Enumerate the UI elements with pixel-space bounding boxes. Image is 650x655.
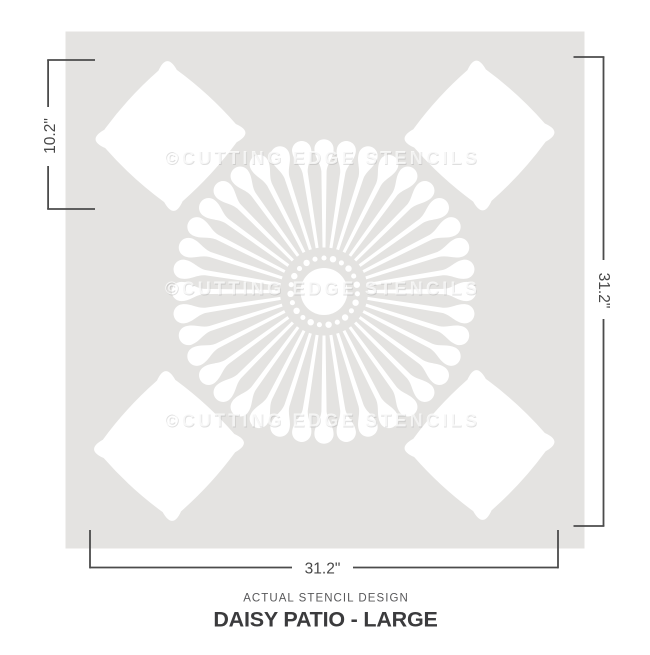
svg-text:DAISY PATIO - LARGE: DAISY PATIO - LARGE [213,608,437,632]
svg-text:©CUTTING EDGE STENCILS: ©CUTTING EDGE STENCILS [165,411,480,431]
svg-text:ACTUAL STENCIL DESIGN: ACTUAL STENCIL DESIGN [243,593,409,605]
svg-text:31.2": 31.2" [305,561,341,578]
svg-text:31.2": 31.2" [595,273,612,309]
svg-text:©CUTTING EDGE STENCILS: ©CUTTING EDGE STENCILS [165,278,480,298]
svg-text:©CUTTING EDGE STENCILS: ©CUTTING EDGE STENCILS [165,148,480,168]
svg-text:10.2": 10.2" [42,118,59,154]
